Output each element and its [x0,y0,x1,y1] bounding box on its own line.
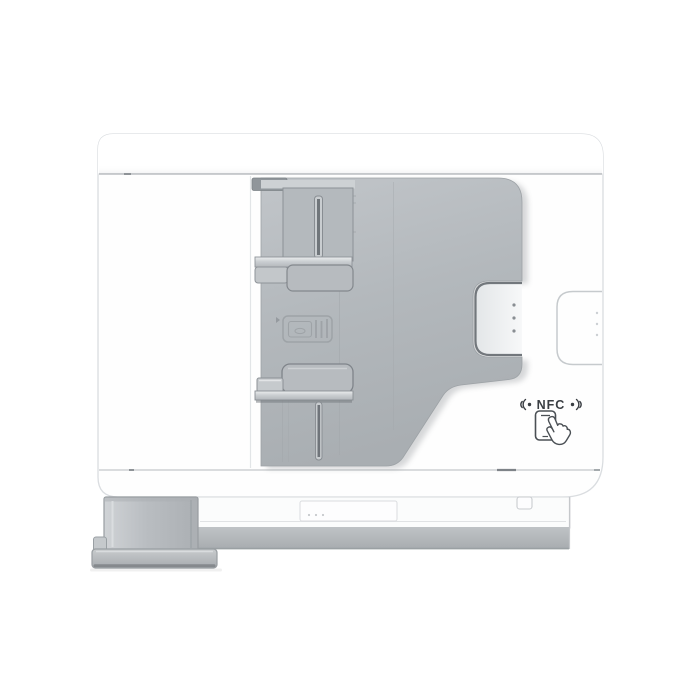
base-tab [517,497,532,509]
base-recess-strip [300,501,397,521]
tray-foot-shadow [90,569,222,572]
nfc-label: NFC [537,398,566,412]
guide-slot-upper-dark [317,199,320,255]
guide-block-upper [287,265,353,291]
guide-knob-upper [255,267,288,283]
printer-product-photo: NFC [0,0,700,700]
tray-handle-block [104,497,198,550]
guide-slot-lower-dark [318,405,321,457]
slider-arm-lower [255,391,353,400]
adf-handle-recess [476,283,523,355]
adf-guide-rail [261,180,355,189]
tray-handle-top-shadow [105,498,197,502]
lid-shade [99,165,602,174]
product-photo-canvas: NFC [0,0,700,700]
